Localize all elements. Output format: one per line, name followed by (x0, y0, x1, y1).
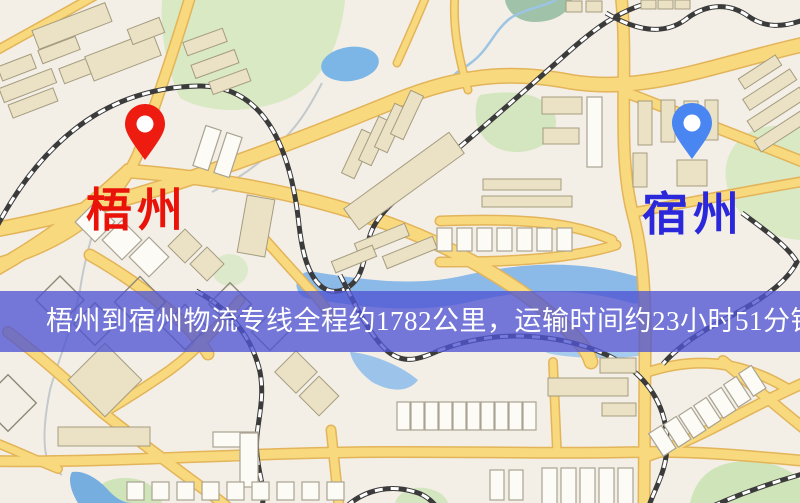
route-info-banner: 梧州到宿州物流专线全程约1782公里，运输时间约23小时51分钟. (0, 291, 800, 352)
origin-pin-icon (119, 100, 171, 170)
destination-pin-icon (666, 99, 718, 169)
logistics-map-image: 梧州 宿州 梧州到宿州物流专线全程约1782公里，运输时间约23小时51分钟. (0, 0, 800, 503)
destination-label: 宿州 (642, 178, 744, 244)
origin-label: 梧州 (86, 174, 188, 240)
map-canvas (0, 0, 800, 503)
